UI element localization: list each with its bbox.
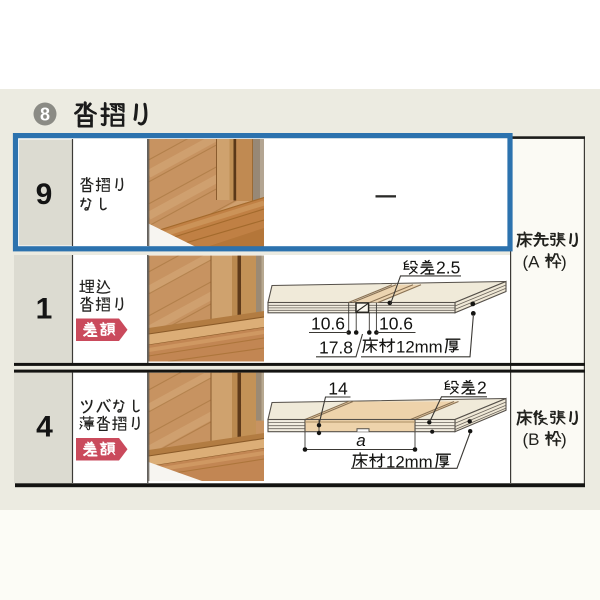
svg-text:2: 2 <box>477 378 487 398</box>
svg-text:(B: (B <box>523 430 540 449</box>
svg-text:4: 4 <box>36 411 53 444</box>
svg-text:2.5: 2.5 <box>436 258 460 278</box>
svg-text:1: 1 <box>36 292 53 325</box>
svg-text:14: 14 <box>328 379 348 399</box>
svg-text:10.6: 10.6 <box>311 314 345 334</box>
svg-text:a: a <box>356 431 365 450</box>
svg-text:): ) <box>561 253 567 272</box>
svg-text:10.6: 10.6 <box>379 314 413 334</box>
svg-text:(A: (A <box>523 253 541 272</box>
svg-text:12mm: 12mm <box>396 337 443 356</box>
svg-text:9: 9 <box>36 178 53 211</box>
svg-text:): ) <box>561 430 567 449</box>
svg-text:17.8: 17.8 <box>319 338 353 358</box>
svg-text:8: 8 <box>40 105 50 125</box>
